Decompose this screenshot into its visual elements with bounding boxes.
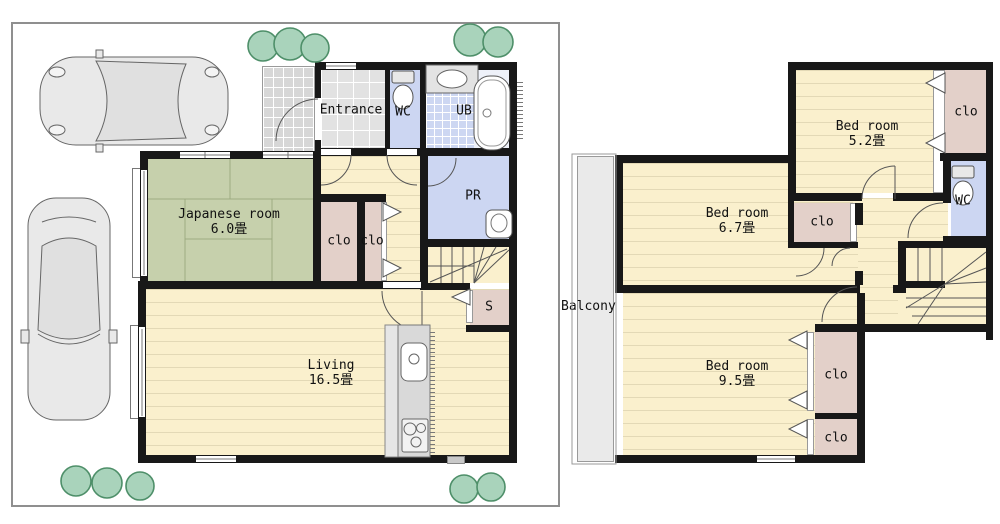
- closet-door: [807, 419, 814, 455]
- wall: [986, 62, 993, 340]
- wall: [788, 62, 993, 70]
- wall: [420, 148, 428, 247]
- closet-door: [807, 332, 814, 411]
- wall: [615, 155, 623, 293]
- wall: [788, 201, 794, 248]
- wall: [857, 293, 865, 463]
- wall: [385, 62, 390, 152]
- wc-2f-label: WC: [955, 194, 971, 209]
- storage-label: S: [485, 300, 493, 315]
- powder-label: PR: [465, 189, 481, 204]
- wall: [788, 193, 862, 201]
- wall: [420, 148, 517, 156]
- closet-95b-label: clo: [824, 431, 847, 446]
- floor-plan-page: Balcony: [0, 0, 1000, 524]
- wall: [313, 151, 321, 288]
- wall: [466, 325, 509, 332]
- closet-a-label: clo: [327, 234, 350, 249]
- wall: [420, 62, 426, 156]
- wall: [815, 413, 857, 419]
- closet-52-label: clo: [954, 105, 977, 120]
- wall: [788, 62, 796, 201]
- window: [757, 456, 795, 462]
- living-label: Living 16.5畳: [308, 358, 355, 388]
- wall: [313, 194, 386, 202]
- window: [141, 170, 147, 276]
- wall: [855, 271, 863, 285]
- kitchen-edge-hatch: [428, 332, 435, 454]
- vent: [447, 456, 465, 464]
- wall: [855, 203, 863, 225]
- wc-1f-label: WC: [395, 105, 411, 120]
- entrance-label: Entrance: [320, 103, 383, 118]
- exterior-hatch: [517, 82, 523, 142]
- living-door-opening: [383, 282, 421, 288]
- closet-95a-label: clo: [824, 368, 847, 383]
- closet-67-label: clo: [810, 215, 833, 230]
- window: [180, 152, 230, 158]
- room-porch: [262, 66, 315, 152]
- bath-label: UB: [456, 104, 472, 119]
- window: [263, 152, 313, 158]
- wall: [898, 241, 988, 248]
- wall: [943, 158, 951, 203]
- bed-52-label: Bed room 5.2畳: [836, 119, 899, 149]
- door-opening: [321, 149, 351, 155]
- window: [139, 327, 145, 417]
- wall: [615, 155, 796, 163]
- wall: [420, 283, 470, 290]
- window: [326, 63, 356, 69]
- closet-b-label: clo: [360, 234, 383, 249]
- wall: [906, 281, 945, 288]
- door-opening: [387, 149, 417, 155]
- wall: [815, 324, 993, 332]
- wall: [615, 455, 865, 463]
- window: [196, 456, 236, 462]
- wall: [420, 239, 517, 247]
- stairs-1f-floor: [428, 247, 509, 283]
- bed-95-label: Bed room 9.5畳: [706, 359, 769, 389]
- storage-door: [466, 290, 473, 323]
- wall: [615, 285, 860, 293]
- bed-67-label: Bed room 6.7畳: [706, 206, 769, 236]
- japanese-room-label: Japanese room 6.0畳: [178, 207, 280, 237]
- wall: [898, 241, 906, 288]
- wall: [788, 242, 858, 248]
- wall: [509, 62, 517, 463]
- balcony-label: Balcony: [561, 299, 616, 314]
